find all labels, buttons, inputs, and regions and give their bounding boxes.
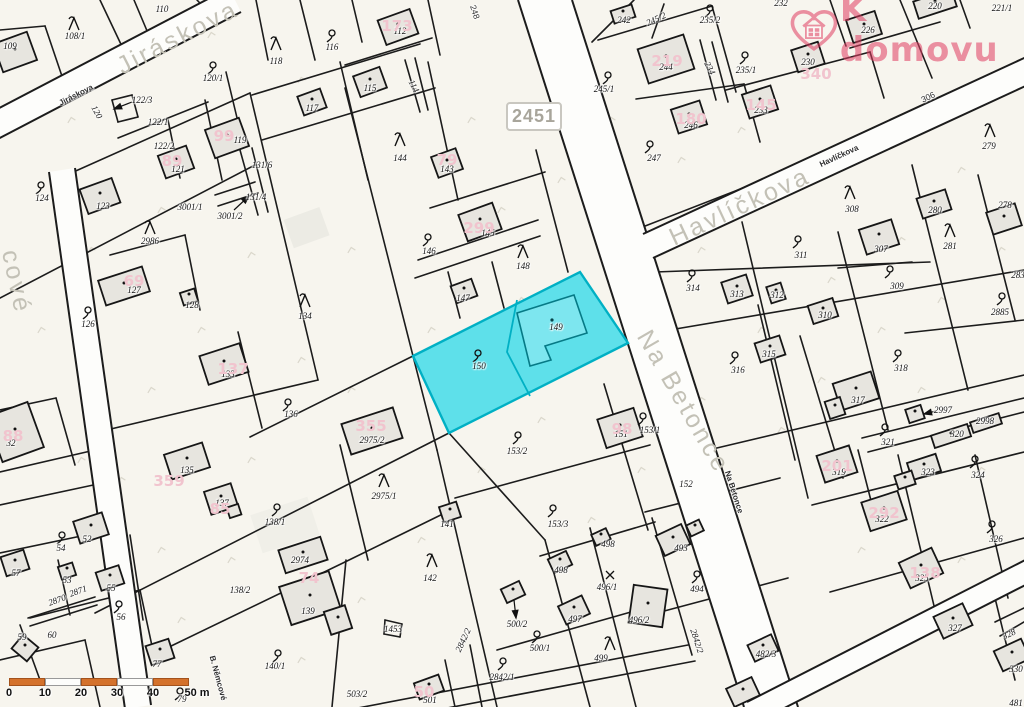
cadastral-map[interactable]: JiráskovaJiráskovacovéB. NěmcovéNa Beton… [0, 0, 1024, 707]
logo[interactable]: K domovu [788, 4, 1018, 56]
heart-house-icon [788, 4, 840, 56]
logo-text: K domovu [840, 0, 1018, 70]
road-badge: 2451 [506, 102, 562, 131]
